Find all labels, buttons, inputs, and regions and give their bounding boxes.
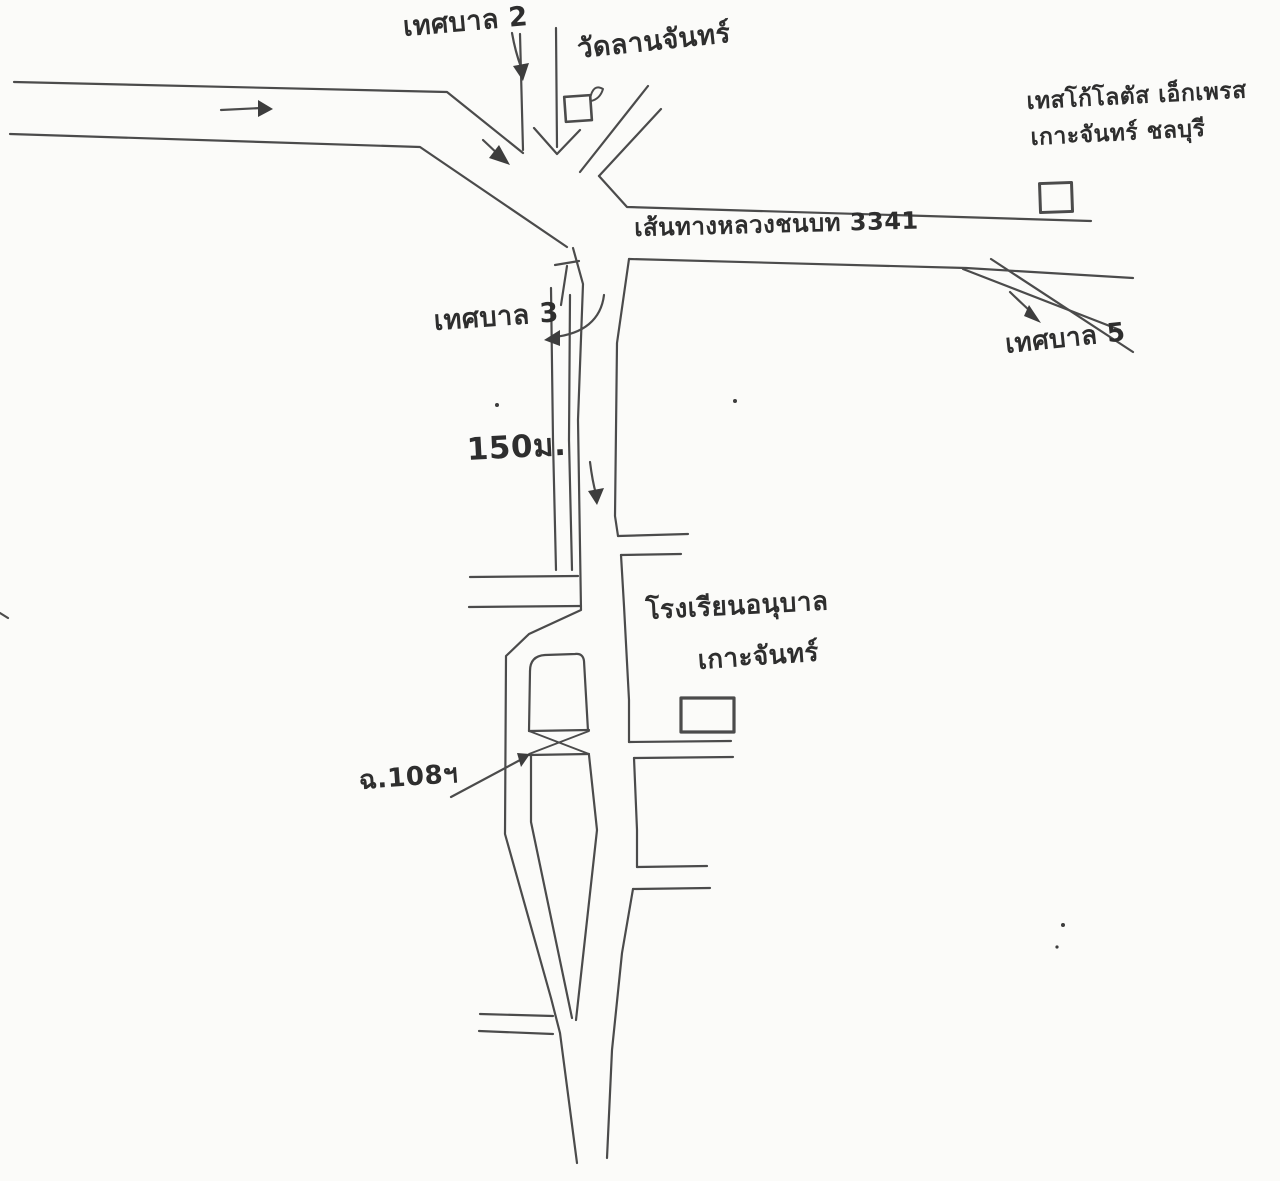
side-street-east1-bottom bbox=[621, 554, 681, 555]
temple-spur-line-2 bbox=[599, 109, 661, 176]
service-road-t-stem bbox=[561, 266, 567, 305]
branch-southwest-top bbox=[480, 1014, 553, 1016]
sketch-map-page: เทศบาล 2 วัดลานจันทร์ เทสโก้โลตัส เอ็กเพ… bbox=[0, 0, 1280, 1181]
ink-layer bbox=[0, 28, 1133, 1163]
road-north-left-line bbox=[520, 34, 523, 150]
side-street-west-top bbox=[470, 576, 578, 577]
highway-bottom-line bbox=[629, 259, 1133, 278]
scan-dot-3 bbox=[1061, 923, 1065, 927]
branch-southwest-bottom bbox=[479, 1031, 553, 1034]
scan-dot-4 bbox=[1055, 945, 1058, 948]
scan-dot-1 bbox=[495, 403, 499, 407]
road-west-bottom-line bbox=[10, 134, 567, 247]
arrowheads bbox=[258, 63, 1065, 949]
side-street-east2-bottom bbox=[634, 757, 733, 758]
arrow-main-down-shaft bbox=[590, 462, 596, 494]
island-left-upper bbox=[529, 671, 530, 731]
road-north-right-line bbox=[556, 28, 557, 147]
arrow-east-head bbox=[258, 100, 273, 117]
main-road-right-2 bbox=[621, 555, 629, 742]
main-road-right-4 bbox=[607, 889, 633, 1158]
service-road-t-bar bbox=[555, 261, 579, 265]
island-left-lower bbox=[531, 755, 572, 1018]
temple-marker bbox=[564, 95, 592, 122]
side-street-east1-top bbox=[618, 534, 688, 536]
temple-flag-mark bbox=[590, 87, 603, 101]
arrow-main-down-head bbox=[588, 488, 604, 505]
side-street-west-bottom bbox=[469, 606, 581, 607]
side-street-east2-top bbox=[629, 741, 731, 742]
main-road-left-and-loop-outer bbox=[505, 248, 583, 1163]
bridge-bottom-line bbox=[529, 754, 589, 755]
map-drawing bbox=[0, 0, 1280, 1181]
island-top-edge bbox=[530, 654, 588, 731]
bridge-top-line bbox=[529, 730, 589, 731]
scan-dot-2 bbox=[733, 399, 737, 403]
school-marker bbox=[681, 698, 734, 732]
side-street-east3-top bbox=[637, 866, 707, 867]
island-right-lower bbox=[576, 755, 597, 1020]
scan-mark-left-edge bbox=[0, 613, 8, 618]
main-road-right-1 bbox=[615, 259, 629, 536]
service-road-right-line bbox=[569, 295, 572, 570]
arrow-bridge-shaft bbox=[451, 759, 522, 797]
main-road-right-3 bbox=[634, 758, 637, 867]
label-distance-150m: 150ม. bbox=[466, 429, 567, 467]
store-marker bbox=[1040, 182, 1073, 212]
arrow-east-shaft bbox=[221, 108, 261, 110]
side-street-east3-bottom bbox=[633, 888, 710, 889]
